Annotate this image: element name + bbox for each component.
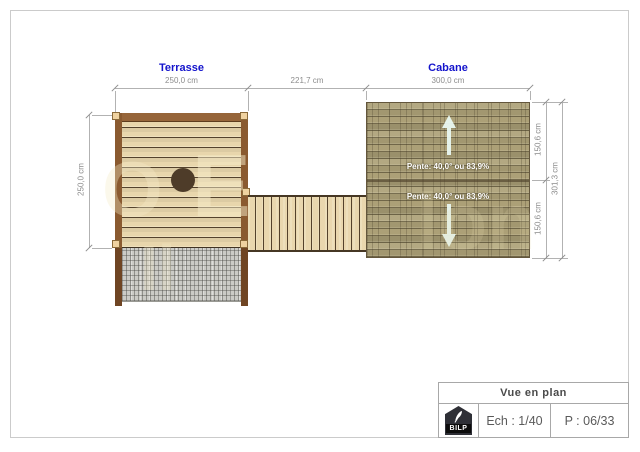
terrace-rail-left <box>115 113 122 248</box>
dim-extension <box>532 180 550 181</box>
slope-label-top: Pente: 40,0° ou 83,9% <box>367 162 529 171</box>
dim-cabane-width: 300,0 cm <box>366 76 530 85</box>
enclosure-post-left <box>115 248 122 306</box>
dim-cabane-bottom-half: 150,6 cm <box>534 189 543 249</box>
slope-arrow-down-shaft <box>447 204 451 234</box>
dim-extension <box>92 115 112 116</box>
terrace-deck <box>115 113 248 248</box>
dim-extension <box>115 91 116 112</box>
dim-line-right-outer <box>562 102 563 258</box>
walkway-ramp <box>248 195 366 252</box>
deck-hatch-hole <box>171 168 195 192</box>
slope-arrow-up-shaft <box>447 128 451 155</box>
wire-mesh-enclosure <box>122 248 241 302</box>
slope-label-bottom: Pente: 40,0° ou 83,9% <box>367 192 529 201</box>
logo-cell: BILP <box>439 404 479 437</box>
dim-extension <box>92 248 112 249</box>
dim-cabane-total-depth: 301,3 cm <box>551 139 560 219</box>
bilp-logo-text: BILP <box>446 424 471 433</box>
drawing-title: Vue en plan <box>439 383 628 404</box>
dim-extension <box>366 91 367 100</box>
post-cap <box>112 112 120 120</box>
title-block: Vue en plan BILP Ech : 1/40 P : 06/33 <box>438 382 629 438</box>
post-cap <box>240 240 248 248</box>
dim-cabane-top-half: 150,6 cm <box>534 110 543 170</box>
post-cap <box>240 112 248 120</box>
slope-arrow-up-icon <box>442 115 456 128</box>
terrace-rail-right <box>241 113 248 248</box>
page-number: P : 06/33 <box>551 404 628 437</box>
label-terrasse: Terrasse <box>115 62 248 74</box>
dim-gap-width: 221,7 cm <box>248 76 366 85</box>
dim-extension <box>532 258 568 259</box>
dim-extension <box>530 91 531 100</box>
dim-extension <box>248 91 249 111</box>
enclosure-post-right <box>241 248 248 306</box>
cabin-roof: Pente: 40,0° ou 83,9% Pente: 40,0° ou 83… <box>366 102 530 258</box>
plan-sheet: Terrasse Cabane 250,0 cm 221,7 cm 300,0 … <box>0 0 640 452</box>
bilp-logo: BILP <box>445 406 472 435</box>
roof-ridge-line <box>367 180 529 182</box>
scale-label: Ech : 1/40 <box>479 404 551 437</box>
dim-terrasse-depth: 250,0 cm <box>77 140 86 220</box>
post-cap <box>112 240 120 248</box>
dim-terrasse-width: 250,0 cm <box>115 76 248 85</box>
dim-line-top <box>115 88 530 89</box>
terrace-rail-top <box>115 113 248 122</box>
feather-icon <box>451 409 466 425</box>
dim-line-left <box>89 115 90 248</box>
label-cabane: Cabane <box>366 62 530 74</box>
slope-arrow-down-icon <box>442 234 456 247</box>
